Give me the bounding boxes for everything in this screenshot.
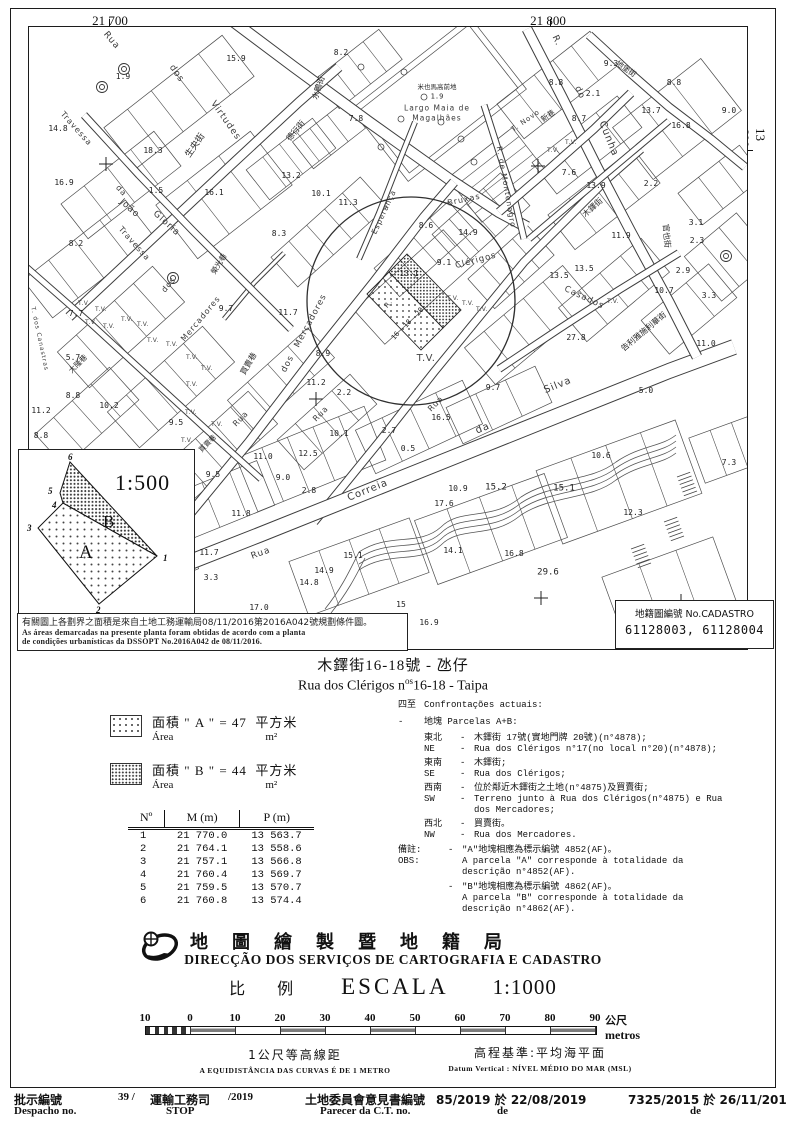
despacho-value-3: /2019 [228,1091,253,1103]
inset-vertex-4: 4 [52,500,57,510]
table-header-row: NºM (m)P (m) [128,810,314,829]
despacho-value-2b: STOP [166,1105,195,1117]
scalebar-tick: 30 [310,1012,340,1024]
confrontations-heading: 四至Confrontações actuais: [398,700,776,711]
scale-pt: ESCALA [341,974,448,999]
table-row: 321 757.113 566.8 [128,856,314,869]
title-pt-sup: os [405,676,413,686]
table-header: Nº [128,810,165,829]
table-row: 221 764.113 558.6 [128,843,314,856]
obs-label: 備註:OBS: [398,845,448,878]
table-row: 121 770.013 563.7 [128,829,314,844]
despacho-label-pt: Despacho no. [14,1105,76,1117]
scalebar-tick: 10 [130,1012,160,1024]
parecer-de: de [497,1105,508,1117]
vertical-datum-note: 高程基準:平均海平面 Datum Vertical : NÍVEL MÉDIO … [400,1044,680,1073]
cadastro-label: 地籍圖編號 No.CADASTRO [616,606,773,620]
cadastro-numbers: 61128003, 61128004 [616,623,773,637]
right-reference-de: de [690,1105,701,1117]
table-row: 421 760.413 569.7 [128,869,314,882]
scalebar-tick: 50 [400,1012,430,1024]
confrontation-row: 東北-木鐸街 17號(實地門牌 20號)(n°4878); [398,733,776,744]
scale-zh: 比 例 [229,981,307,998]
obs-bullet: - [448,845,462,878]
area-a-sub: Áream² [152,731,297,743]
table-header: P (m) [239,810,313,829]
title-pt-suffix: 16-18 - Taipa [413,679,488,694]
scale-bar: 100102030405060708090 公尺 metros [145,1012,705,1035]
footer: 批示編號 Despacho no. 39 / 運輸工務司 STOP /2019 … [0,1089,786,1125]
area-b-swatch [110,763,142,785]
inset-vertex-3: 3 [27,523,32,533]
table-row: 621 760.813 574.4 [128,895,314,908]
plan-title-pt: Rua dos Clérigos nos16-18 - Taipa [0,676,786,695]
inset-parcel-a-label: A [79,542,93,564]
scale-bar-units: 公尺 metros [605,1012,640,1043]
inset-vertex-1: 1 [163,553,168,563]
confrontation-row: SW-Terreno junto à Rua dos Clérigos(n°48… [398,794,776,816]
contour-interval-note: 1公尺等高線距 A EQUIDISTÂNCIA DAS CURVAS É DE … [175,1046,415,1075]
scalebar-tick: 40 [355,1012,385,1024]
area-b-legend: 面積 " B " = 44 平方米 Áream² [110,760,297,791]
parcels-line: -地塊 Parcelas A+B: [398,717,776,728]
confrontation-row: 西北-買賣街。 [398,819,776,830]
cadastro-number-box: 地籍圖編號 No.CADASTRO 61128003, 61128004 [615,600,774,649]
area-a-legend: 面積 " A " = 47 平方米 Áream² [110,712,297,743]
confrontation-row: 東南-木鐸街; [398,758,776,769]
confrontation-row: NW-Rua dos Mercadores. [398,830,776,841]
source-note-zh: 有關圖上各劃界之面積是來自土地工務運輸局08/11/2016第2016A042號… [22,615,403,628]
parecer-label-pt: Parecer da C.T. no. [320,1105,410,1117]
area-b-line: 面積 " B " = 44 平方米 [152,760,297,779]
area-a-line: 面積 " A " = 47 平方米 [152,712,297,731]
scalebar-tick: 10 [220,1012,250,1024]
scalebar-tick: 70 [490,1012,520,1024]
title-pt-prefix: Rua dos Clérigos n [298,679,405,694]
area-b-sub: Áream² [152,779,297,791]
confrontation-row: SE-Rua dos Clérigos; [398,769,776,780]
inset-vertex-6: 6 [68,452,73,462]
scalebar-tick: 60 [445,1012,475,1024]
obs-item: "A"地塊相應為標示編號 4852(AF)。 A parcela "A" cor… [462,845,776,878]
confrontation-row: NE-Rua dos Clérigos n°17(no local n°20)(… [398,744,776,755]
cadastral-plan-sheet: 21 700 21 800 13 600 RuadosVirtudes生央街德行… [0,0,786,1125]
parcel-inset: 1:500 A B 1 2 3 4 5 6 [18,449,195,614]
obs-block: 備註:OBS: - "A"地塊相應為標示編號 4852(AF)。 A parce… [398,845,776,915]
plan-title-zh: 木鐸街16-18號 - 氹仔 [0,654,786,675]
scale-statement: 比 例 ESCALA 1:1000 [0,974,786,1000]
agency-name-pt: DIRECÇÃO DOS SERVIÇOS DE CARTOGRAFIA E C… [0,952,786,968]
scalebar-tick: 20 [265,1012,295,1024]
parecer-value: 85/2019 於 22/08/2019 [436,1091,586,1108]
agency-name-zh: 地圖繪製暨地籍局 [190,928,680,954]
right-reference-value: 7325/2015 於 26/11/2018 [628,1091,786,1108]
obs-bullet: - [448,882,462,915]
source-note: 有關圖上各劃界之面積是來自土地工務運輸局08/11/2016第2016A042號… [17,613,408,651]
scalebar-tick: 0 [175,1012,205,1024]
obs-item: "B"地塊相應為標示編號 4862(AF)。 A parcela "B" cor… [462,882,776,915]
despacho-value-1: 39 / [118,1091,135,1103]
table-header: M (m) [165,810,239,829]
table-row: 521 759.513 570.7 [128,882,314,895]
scalebar-tick: 80 [535,1012,565,1024]
area-a-swatch [110,715,142,737]
confrontation-row: 西南-位於鄰近木鐸街之土地(n°4875)及買賣街; [398,783,776,794]
confrontations-block: 四至Confrontações actuais: -地塊 Parcelas A+… [398,700,776,844]
inset-scale: 1:500 [115,470,170,496]
source-note-pt2: de condições urbanísticas da DSSOPT No.2… [22,637,403,646]
inset-vertex-5: 5 [48,486,53,496]
scale-value: 1:1000 [493,975,557,999]
vertex-coordinate-table: NºM (m)P (m) 121 770.013 563.7221 764.11… [128,810,314,908]
inset-parcel-b-label: B [103,512,114,532]
source-note-pt1: As áreas demarcadas na presente planta f… [22,628,403,637]
